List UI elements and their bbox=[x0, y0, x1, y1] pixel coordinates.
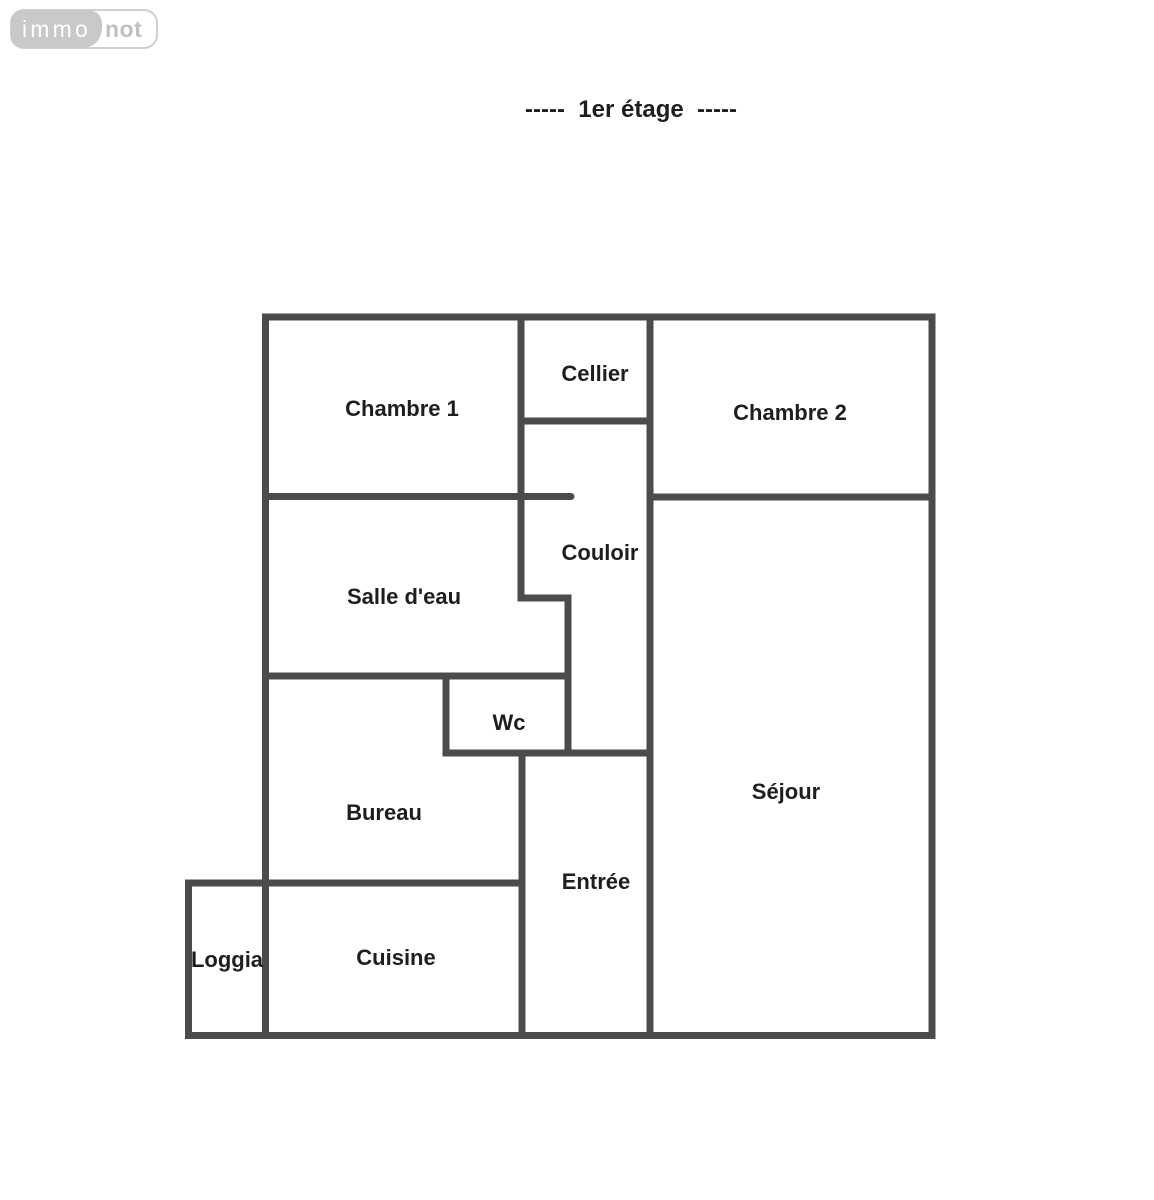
svg-text:Cuisine: Cuisine bbox=[356, 945, 435, 970]
svg-text:Chambre 1: Chambre 1 bbox=[345, 396, 459, 421]
svg-text:Loggia: Loggia bbox=[191, 947, 264, 972]
svg-text:not: not bbox=[105, 16, 142, 42]
svg-text:Couloir: Couloir bbox=[562, 540, 639, 565]
svg-text:Salle d'eau: Salle d'eau bbox=[347, 584, 461, 609]
svg-text:Bureau: Bureau bbox=[346, 800, 422, 825]
svg-text:Chambre 2: Chambre 2 bbox=[733, 400, 847, 425]
svg-text:Entrée: Entrée bbox=[562, 869, 630, 894]
svg-text:immo: immo bbox=[22, 16, 91, 42]
svg-text:Cellier: Cellier bbox=[561, 361, 629, 386]
svg-text:Wc: Wc bbox=[493, 710, 526, 735]
svg-text:Séjour: Séjour bbox=[752, 779, 821, 804]
svg-text:----- 1er étage -----: ----- 1er étage ----- bbox=[525, 96, 737, 123]
